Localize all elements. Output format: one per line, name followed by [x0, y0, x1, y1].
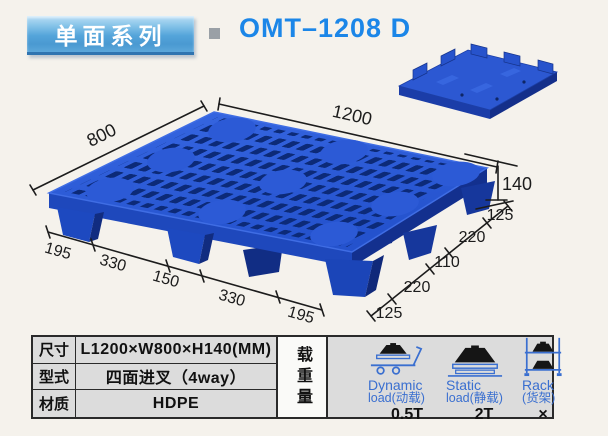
- load-col-dynamic: Dynamic load(动载) 0.5T: [368, 340, 446, 424]
- dim-length-label: 1200: [330, 101, 373, 129]
- dim-segment-label: 220: [459, 229, 486, 246]
- load-col-static: Static load(静载) 2T: [446, 340, 522, 424]
- small-pallet-foot: [538, 60, 553, 74]
- dim-segment-label: 195: [43, 240, 73, 264]
- load-col-label: Dynamic: [368, 378, 422, 392]
- dim-tick: [426, 264, 434, 274]
- spec-row-label: 型式: [33, 364, 76, 391]
- pallet-foot: [325, 259, 373, 297]
- dimension-140: 140: [465, 154, 532, 209]
- dim-tick: [367, 311, 375, 321]
- dim-tick: [504, 201, 512, 211]
- dim-tick: [276, 291, 280, 303]
- load-col-label-cn: load(静载): [446, 392, 503, 405]
- dim-segment-label: 330: [98, 252, 128, 276]
- series-badge: 单面系列: [27, 16, 194, 55]
- dim-tick: [200, 270, 204, 282]
- dim-tick: [320, 304, 324, 316]
- dim-segment-label: 220: [404, 279, 431, 296]
- load-col-value: 2T: [475, 406, 494, 424]
- deck-pad: [370, 189, 421, 219]
- small-pallet-foot-mark: [470, 83, 493, 93]
- spec-table: 尺寸 L1200×W800×H140(MM) 型式 四面进叉（4way） 材质 …: [31, 335, 278, 419]
- dim-tick: [218, 98, 220, 110]
- spec-row-label: 尺寸: [33, 337, 76, 364]
- small-pallet-left-face: [399, 86, 490, 119]
- deck-pad: [431, 159, 482, 189]
- deck-pad: [207, 115, 258, 145]
- dim-line: [48, 232, 322, 310]
- small-pallet-foot-mark: [436, 75, 459, 85]
- spec-row-label: 材质: [33, 390, 76, 417]
- load-capacity-header-cell: 载重量: [276, 335, 328, 419]
- load-col-label-cn: (货架): [522, 392, 555, 405]
- dimension-800: 800: [30, 101, 207, 195]
- small-pallet-foot: [504, 52, 520, 66]
- load-col-value: ×: [538, 406, 547, 424]
- pallet-foot-shade: [89, 212, 104, 242]
- deck-pad: [85, 175, 136, 205]
- small-pallet-hole-dot: [460, 93, 463, 96]
- load-col-label: Static: [446, 378, 481, 392]
- dim-tick: [30, 185, 36, 195]
- dim-ext-line: [465, 154, 517, 166]
- dim-segment-label: 125: [487, 207, 514, 224]
- load-col-label-cn: load(动载): [368, 392, 425, 405]
- deck-mesh: [65, 117, 472, 247]
- dim-segment-label: 110: [434, 254, 460, 271]
- pallet-foot-shade: [365, 255, 384, 297]
- spec-row-value: HDPE: [76, 390, 276, 417]
- pallet-foot: [243, 244, 283, 277]
- dimension-front-edge: 195 330 150 330 195: [43, 226, 324, 327]
- catalog-page: 单面系列 OMT–1208 D: [0, 0, 608, 436]
- dim-line: [371, 206, 508, 316]
- small-pallet-hole-dot: [495, 97, 498, 100]
- load-col-value: 0.5T: [391, 406, 423, 424]
- trolley-load-icon-svg: [368, 341, 426, 378]
- dim-ext-line: [476, 201, 513, 209]
- small-pallet-foot: [441, 49, 455, 66]
- dim-segment-label: 195: [286, 304, 316, 328]
- dim-tick: [46, 226, 50, 238]
- pallet-foot-shade: [199, 233, 214, 264]
- spec-row-value: 四面进叉（4way）: [76, 364, 276, 391]
- deck-right-face: [352, 168, 487, 267]
- dim-line: [33, 106, 204, 190]
- small-pallet-deck: [399, 50, 557, 110]
- main-pallet: [49, 112, 495, 297]
- dim-tick: [496, 161, 498, 173]
- dim-line: [219, 104, 497, 167]
- rack-load-icon: [522, 340, 564, 378]
- small-pallet-foot-mark: [500, 68, 521, 77]
- deck-pad: [146, 145, 197, 175]
- pallet-foot: [57, 207, 95, 242]
- spec-row-value: L1200×W800×H140(MM): [76, 337, 276, 364]
- dim-tick: [445, 248, 453, 258]
- dim-tick: [166, 260, 170, 272]
- deck-pad: [319, 137, 370, 167]
- small-pallet-right-face: [490, 72, 557, 119]
- dim-height-label: 140: [502, 174, 532, 194]
- dim-segment-label: 150: [151, 268, 181, 292]
- weight-on-pallet-icon-svg: [446, 341, 504, 378]
- load-capacity-title: 载重量: [290, 346, 314, 409]
- load-capacity-box: Dynamic load(动载) 0.5T Static load(静载) 2T: [326, 335, 554, 419]
- pallet-foot: [167, 228, 205, 264]
- deck-top: [49, 112, 487, 252]
- dim-width-label: 800: [84, 120, 120, 151]
- dim-tick: [201, 101, 207, 111]
- dimension-1200: 1200: [218, 98, 498, 173]
- weight-on-pallet-icon: [446, 340, 504, 378]
- trolley-load-icon: [368, 340, 426, 378]
- small-pallet-underside: [399, 44, 557, 119]
- dim-segment-label: 330: [217, 287, 247, 311]
- deck-pad: [309, 219, 360, 249]
- deck-left-face: [49, 193, 352, 267]
- dim-tick: [388, 294, 396, 304]
- dim-tick: [91, 239, 95, 251]
- small-pallet-foot: [471, 44, 487, 58]
- dim-segment-label: 125: [376, 305, 403, 322]
- product-model-title: OMT–1208 D: [239, 13, 411, 44]
- pallet-foot: [461, 181, 495, 215]
- small-pallet-foot: [413, 63, 427, 80]
- load-col-rack: Rack (货架) ×: [522, 340, 564, 424]
- dim-tick: [483, 218, 491, 228]
- pallet-foot: [403, 225, 437, 260]
- small-pallet-hole-dot: [522, 80, 525, 83]
- pallet-foot: [363, 217, 397, 249]
- rack-load-icon-svg: [522, 334, 564, 378]
- dimension-right-edge: 125 220 110 220 125: [367, 201, 513, 322]
- deck-pad: [258, 167, 309, 197]
- series-badge-label: 单面系列: [55, 17, 167, 51]
- bullet-square-icon: [209, 28, 220, 39]
- deck-pad: [197, 197, 248, 227]
- deck-load-pads: [85, 115, 482, 249]
